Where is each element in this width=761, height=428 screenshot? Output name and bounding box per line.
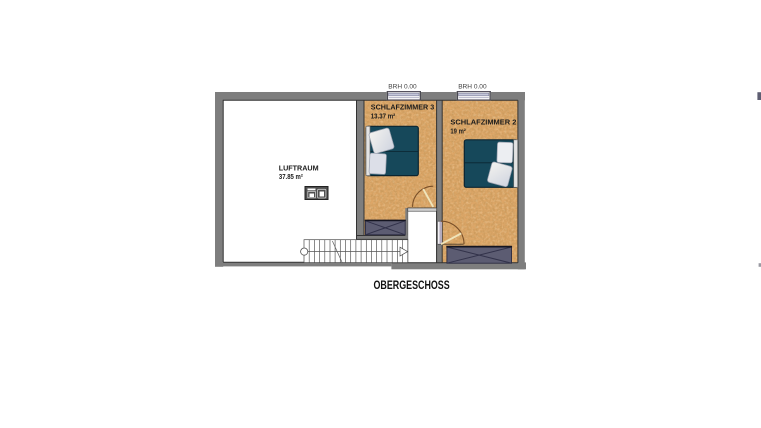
svg-text:13.37 m²: 13.37 m² [371,114,396,121]
svg-text:OBERGESCHOSS: OBERGESCHOSS [374,280,450,292]
svg-text:SCHLAFZIMMER 2: SCHLAFZIMMER 2 [450,117,516,126]
svg-text:37.85 m²: 37.85 m² [279,174,304,181]
svg-text:BRH 0.00: BRH 0.00 [458,84,487,91]
svg-text:SCHLAFZIMMER 3: SCHLAFZIMMER 3 [371,102,434,111]
svg-text:19 m²: 19 m² [450,129,466,136]
svg-text:BRH 0.00: BRH 0.00 [388,84,417,91]
svg-text:LUFTRAUM: LUFTRAUM [279,163,319,172]
